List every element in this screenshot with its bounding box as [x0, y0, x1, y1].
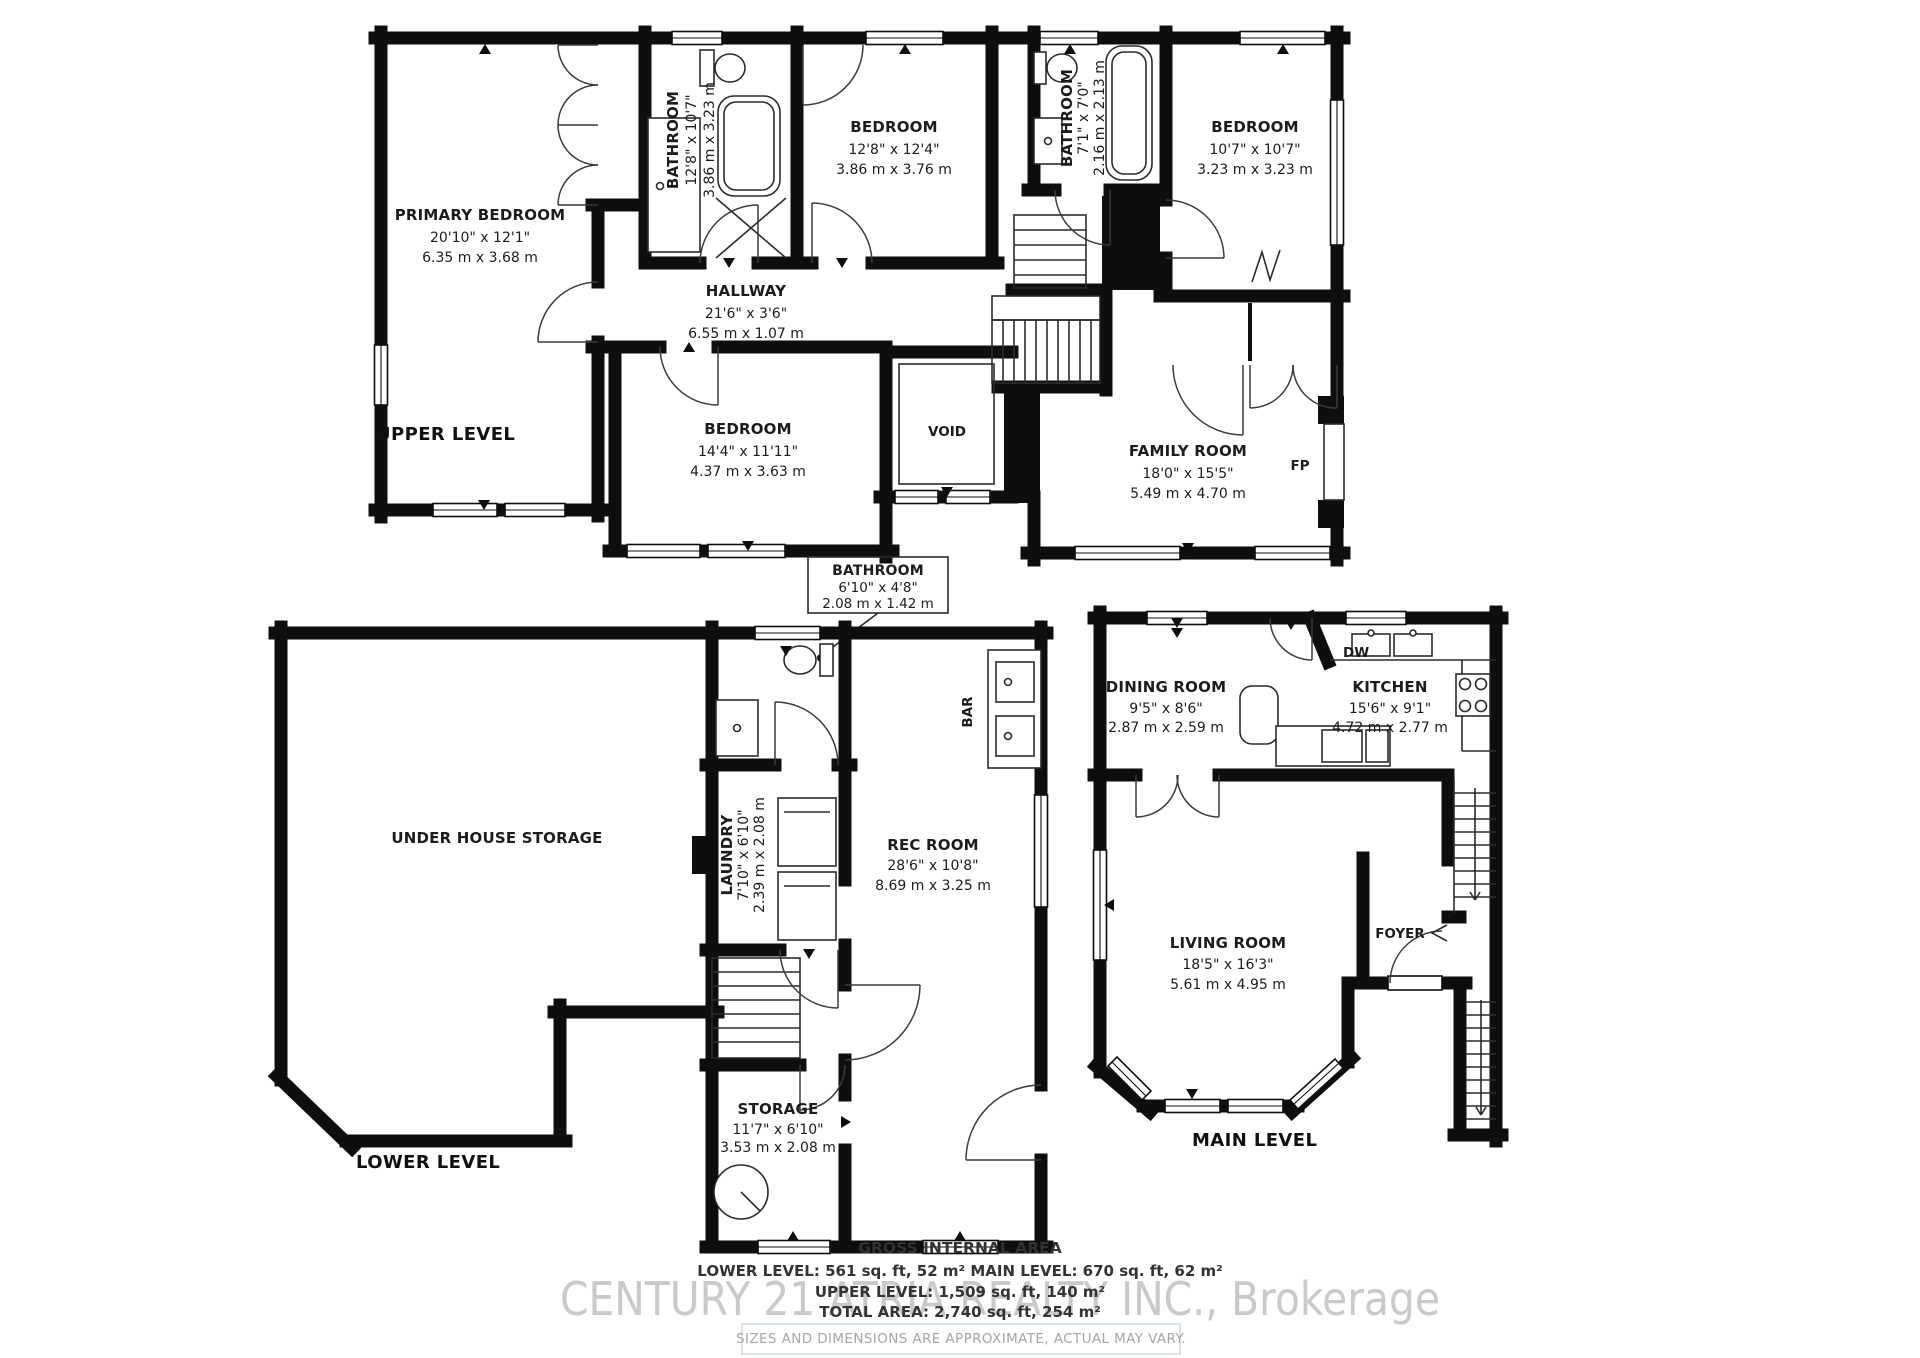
foyer-label: FOYER: [1375, 926, 1425, 942]
room-label: BEDROOM: [704, 420, 792, 438]
room-dim: 6'10" x 4'8": [838, 580, 917, 596]
foyer-arrow-icon: [1432, 925, 1447, 941]
level-title-main: MAIN LEVEL: [1192, 1130, 1317, 1151]
room-dim: 8.69 m x 3.25 m: [875, 878, 991, 894]
room-dim: 15'6" x 9'1": [1349, 701, 1431, 717]
dishwasher-label: DW: [1343, 645, 1369, 661]
front-door-leaf: [1388, 976, 1442, 990]
room-dim: 7'1" x 7'0": [1076, 81, 1092, 154]
bathtub-icon: [718, 96, 780, 196]
area-line: LOWER LEVEL: 561 sq. ft, 52 m² MAIN LEVE…: [697, 1262, 1222, 1280]
kitchen-sink-icon: [1394, 634, 1432, 656]
room-dim: 3.23 m x 3.23 m: [1197, 162, 1313, 178]
room-dim: 21'6" x 3'6": [705, 306, 787, 322]
bar-counter: [988, 650, 1041, 768]
room-dim: 3.86 m x 3.23 m: [702, 82, 718, 198]
closet-rod-symbol: [1252, 250, 1280, 282]
fireplace-wall: [1318, 396, 1344, 424]
gross-area-title: GROSS INTERNAL AREA: [858, 1239, 1061, 1257]
laundry-machines: [778, 798, 836, 940]
island-counter: [1240, 686, 1278, 744]
room-label: UNDER HOUSE STORAGE: [391, 829, 602, 847]
fireplace-icon: [1324, 424, 1344, 500]
room-label: BATHROOM: [1058, 69, 1076, 167]
room-dim: 2.87 m x 2.59 m: [1108, 720, 1224, 736]
floorplan-drawing: PRIMARY BEDROOM 20'10" x 12'1" 6.35 m x …: [0, 0, 1920, 1358]
room-label: BEDROOM: [1211, 118, 1299, 136]
room-dim: 12'8" x 10'7": [684, 94, 700, 185]
floorplan-page: PRIMARY BEDROOM 20'10" x 12'1" 6.35 m x …: [0, 0, 1920, 1358]
upper-level-plan: PRIMARY BEDROOM 20'10" x 12'1" 6.35 m x …: [375, 32, 1345, 561]
room-dim: 2.39 m x 2.08 m: [752, 797, 768, 913]
room-dim: 3.53 m x 2.08 m: [720, 1140, 836, 1156]
room-label: STORAGE: [738, 1100, 819, 1118]
room-dim: 18'0" x 15'5": [1142, 466, 1233, 482]
room-dim: 3.86 m x 3.76 m: [836, 162, 952, 178]
room-dim: 5.61 m x 4.95 m: [1170, 977, 1286, 993]
room-dim: 28'6" x 10'8": [887, 858, 978, 874]
room-dim: 12'8" x 12'4": [848, 142, 939, 158]
dryer-icon: [778, 872, 836, 940]
room-dim: 6.35 m x 3.68 m: [422, 250, 538, 266]
lower-stairs: [712, 958, 800, 1058]
room-dim: 20'10" x 12'1": [430, 230, 530, 246]
disclaimer-text: SIZES AND DIMENSIONS ARE APPROXIMATE, AC…: [736, 1331, 1186, 1347]
toilet-icon: [1034, 52, 1046, 84]
faucet-icon: [657, 183, 664, 190]
room-dim: 14'4" x 11'11": [698, 444, 798, 460]
footer: CENTURY 21 ATRIA REALTY INC., Brokerage …: [560, 1239, 1440, 1354]
room-dim: 10'7" x 10'7": [1209, 142, 1300, 158]
faucet-icon: [734, 725, 741, 732]
room-dim: 18'5" x 16'3": [1182, 957, 1273, 973]
bathtub-icon: [1106, 46, 1152, 180]
toilet-icon: [700, 50, 714, 86]
room-dim: 7'10" x 6'10": [736, 809, 752, 900]
lower-level-plan: UNDER HOUSE STORAGE LAUNDRY 7'10" x 6'10…: [275, 627, 1048, 1254]
level-title-upper: UPPER LEVEL: [376, 424, 515, 445]
room-dim: 11'7" x 6'10": [732, 1122, 823, 1138]
room-dim: 5.49 m x 4.70 m: [1130, 486, 1246, 502]
room-dim: 9'5" x 8'6": [1129, 701, 1202, 717]
room-label: BATHROOM: [664, 91, 682, 189]
room-label: FAMILY ROOM: [1129, 442, 1247, 460]
room-dim: 2.08 m x 1.42 m: [822, 596, 934, 612]
area-line: UPPER LEVEL: 1,509 sq. ft, 140 m²: [815, 1283, 1105, 1301]
fireplace-label: FP: [1290, 458, 1309, 474]
room-label: DINING ROOM: [1106, 678, 1226, 696]
room-label: BEDROOM: [850, 118, 938, 136]
room-label: REC ROOM: [887, 836, 979, 854]
room-dim: 4.72 m x 2.77 m: [1332, 720, 1448, 736]
room-label: HALLWAY: [706, 282, 787, 300]
room-label: LIVING ROOM: [1170, 934, 1287, 952]
level-title-lower: LOWER LEVEL: [356, 1152, 500, 1173]
bar-label: BAR: [960, 696, 976, 728]
room-dim: 6.55 m x 1.07 m: [688, 326, 804, 342]
area-line: TOTAL AREA: 2,740 sq. ft, 254 m²: [819, 1303, 1101, 1321]
void-label: VOID: [928, 424, 966, 440]
room-label: LAUNDRY: [718, 814, 736, 896]
washer-icon: [778, 798, 836, 866]
room-dim: 2.16 m x 2.13 m: [1092, 60, 1108, 176]
room-label: KITCHEN: [1352, 678, 1427, 696]
water-heater-icon: [714, 1165, 768, 1219]
room-dim: 4.37 m x 3.63 m: [690, 464, 806, 480]
main-level-plan: DINING ROOM 9'5" x 8'6" 2.87 m x 2.59 m …: [1094, 612, 1503, 1152]
room-label: PRIMARY BEDROOM: [395, 206, 566, 224]
room-label: BATHROOM: [832, 563, 924, 579]
